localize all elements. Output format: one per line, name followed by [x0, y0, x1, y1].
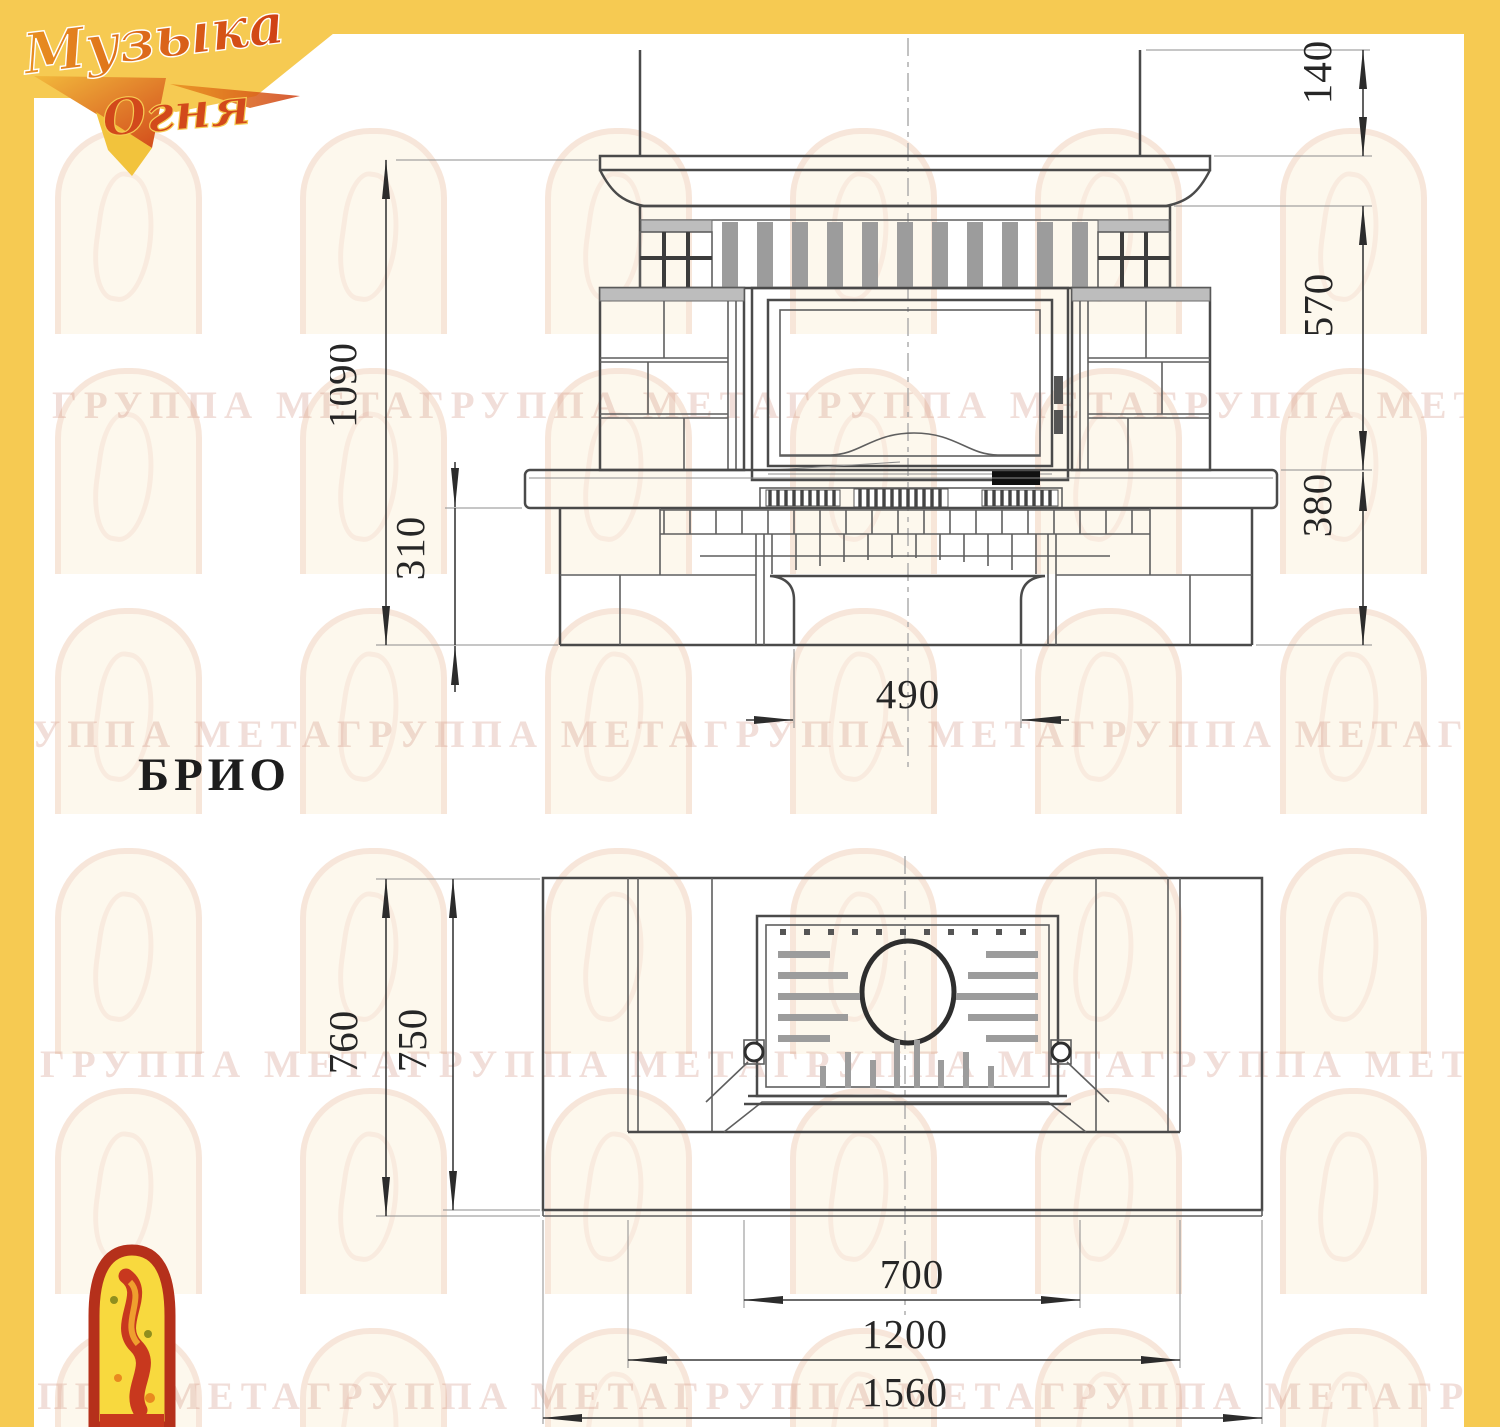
- right-column: [1072, 288, 1210, 470]
- left-corbel: [640, 232, 712, 288]
- dim-base-height: 310: [387, 516, 433, 581]
- insert-front-edge: [744, 1096, 1071, 1104]
- apron-slats: [772, 534, 1036, 574]
- firebox-insert-plan: [706, 916, 1109, 1104]
- frieze-slats: [722, 222, 1088, 288]
- heat-fins-left: [778, 951, 860, 1042]
- bottom-pins: [820, 1040, 994, 1088]
- grille-bars: [766, 489, 1058, 507]
- corner-flame-icon: [84, 1238, 180, 1427]
- dim-body-width: 1200: [862, 1311, 948, 1357]
- dim-hearth-height: 380: [1294, 473, 1340, 538]
- flue-collar-circle: [862, 941, 954, 1043]
- firebox-door: [752, 288, 1068, 485]
- brand-logo: Музыка Огня: [0, 0, 400, 185]
- plan-outline: [543, 878, 1262, 1216]
- left-column: [600, 288, 744, 470]
- dim-total-height: 1090: [330, 342, 365, 428]
- right-corbel: [1098, 232, 1170, 288]
- dimension-lines: [386, 879, 1262, 1418]
- dim-total-depth: 760: [330, 1010, 366, 1075]
- model-title: БРИО: [138, 748, 291, 802]
- vent-grille: [760, 488, 1062, 508]
- door-handle: [1054, 376, 1063, 434]
- glass-wave: [780, 433, 1040, 455]
- dimension-lines: [386, 50, 1363, 720]
- dim-opening-width: 700: [880, 1251, 945, 1297]
- chimney-lines: [640, 50, 1140, 156]
- extension-lines: [376, 879, 1262, 1424]
- heat-fins-right: [956, 951, 1038, 1042]
- base: [560, 508, 1252, 645]
- frieze-band: [640, 206, 1170, 288]
- page: ГРУППА МЕТАГРУППА МЕТАГРУППА МЕТАГРУППА …: [0, 0, 1500, 1427]
- extension-lines: [376, 50, 1372, 728]
- dim-total-width: 1560: [862, 1369, 948, 1415]
- base-slat-band: [664, 510, 1132, 534]
- dim-niche-width: 490: [876, 671, 941, 717]
- logo-word2: Огня: [100, 76, 253, 148]
- dim-firebox-height: 570: [1295, 273, 1341, 338]
- dim-body-depth: 750: [389, 1008, 435, 1073]
- mantel-shelf: [600, 156, 1210, 206]
- dim-flue-offset: 140: [1294, 40, 1340, 105]
- front-view-drawing: 1090 310 140 570 380 490: [330, 28, 1402, 780]
- frame-strip-left: [0, 0, 34, 1427]
- insert-dot-row: [780, 929, 1026, 935]
- plan-view-drawing: 760 750 700 1200 1560: [330, 850, 1330, 1427]
- frame-strip-right: [1464, 0, 1500, 1427]
- watermark-arch: [55, 848, 202, 1054]
